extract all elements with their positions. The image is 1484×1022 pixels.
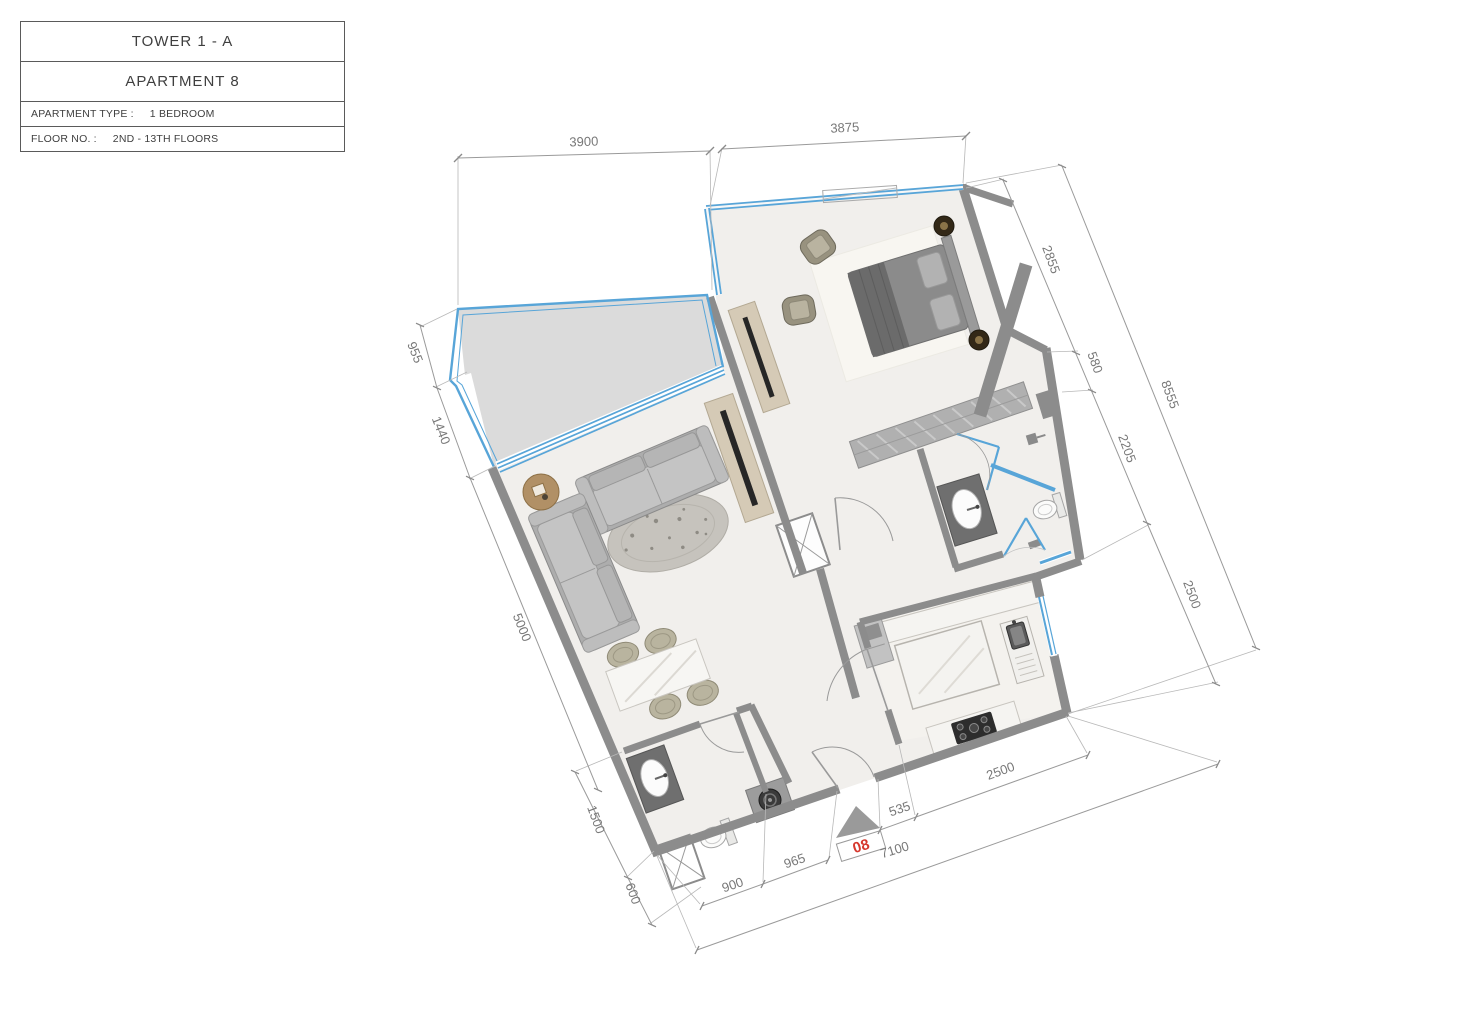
dim-bottom-entry: 535 [887,798,912,819]
dim-right-wardrobe: 580 [1084,350,1106,376]
coffee-table [523,474,559,510]
dim-right-bedroom: 2855 [1039,243,1063,275]
dim-left-living: 5000 [510,611,535,643]
dim-bottom-hall: 965 [782,850,807,871]
floor-no-row: FLOOR NO. : 2ND - 13TH FLOORS [20,126,345,152]
dim-bottom-kitchen: 2500 [984,759,1016,783]
dim-right-bath: 2205 [1115,432,1139,464]
apartment-title: APARTMENT 8 [20,61,345,102]
dim-top-balcony: 3900 [569,134,598,150]
dim-left-balcony-upper: 955 [404,339,426,365]
floor-no-label: FLOOR NO. : [31,133,97,145]
dim-left-balcony-lower: 1440 [429,414,454,446]
tower-title: TOWER 1 - A [20,21,345,62]
dim-right-kitchen: 2500 [1180,578,1204,610]
dim-right-overall: 8555 [1158,378,1182,410]
floor-no-value: 2ND - 13TH FLOORS [113,133,219,145]
apartment-type-label: APARTMENT TYPE : [31,108,134,120]
bedroom-armchair-2 [781,293,817,326]
nightstand-lamp-bottom [969,330,989,350]
nightstand-lamp-top [934,216,954,236]
title-block: TOWER 1 - A APARTMENT 8 APARTMENT TYPE :… [20,22,345,152]
floor-plan-page: TOWER 1 - A APARTMENT 8 APARTMENT TYPE :… [0,0,1484,1022]
apartment-type-value: 1 BEDROOM [150,108,215,120]
apartment-type-row: APARTMENT TYPE : 1 BEDROOM [20,101,345,127]
floor-plan-canvas: 08 [0,0,1484,1022]
dim-left-bath: 1500 [584,803,608,835]
dim-top-bedroom: 3875 [830,119,860,135]
